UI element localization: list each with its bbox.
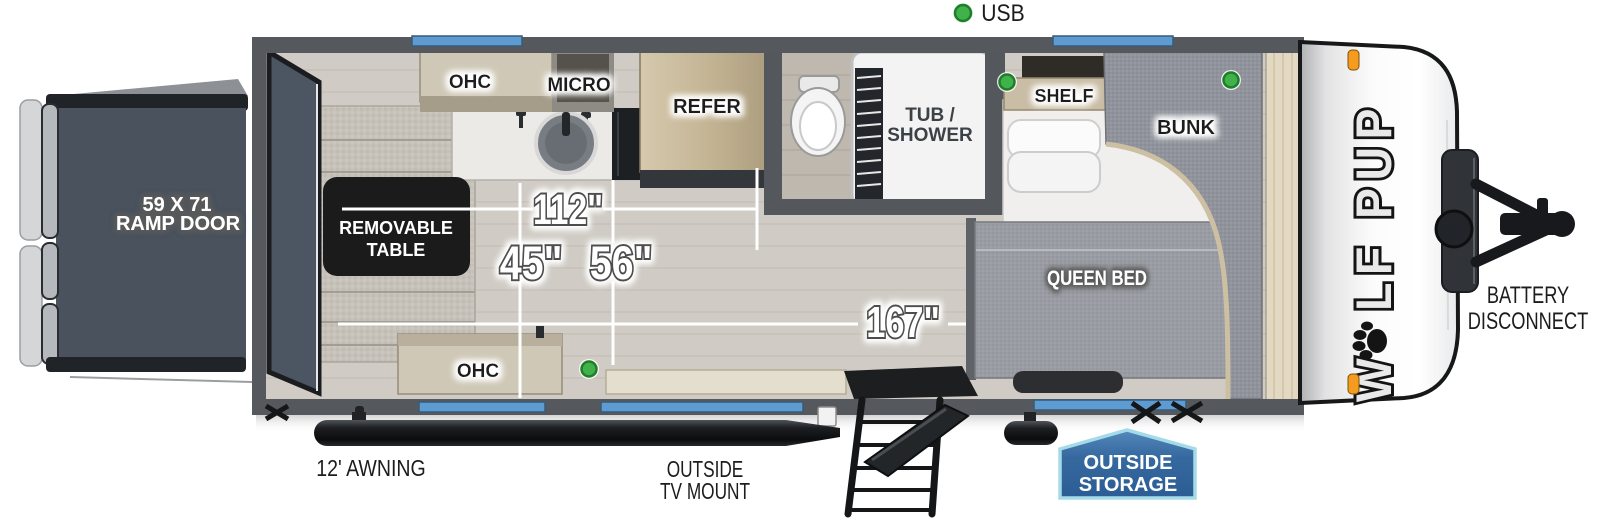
svg-text:DISCONNECT: DISCONNECT [1468,308,1588,335]
svg-text:MICRO: MICRO [547,75,610,96]
svg-text:LF PUP: LF PUP [1346,101,1402,311]
svg-text:STORAGE: STORAGE [1079,474,1178,496]
svg-text:TV MOUNT: TV MOUNT [660,480,750,505]
svg-text:56": 56" [590,238,653,290]
svg-text:45": 45" [500,238,563,290]
svg-text:REFER: REFER [673,96,741,118]
svg-text:USB: USB [981,0,1024,26]
svg-text:OHC: OHC [449,72,492,93]
svg-text:TUB /: TUB / [905,105,955,126]
svg-text:TABLE: TABLE [367,240,426,260]
svg-text:SHOWER: SHOWER [887,125,973,146]
svg-text:REMOVABLE: REMOVABLE [339,218,453,238]
svg-text:112": 112" [533,186,603,234]
svg-text:12' AWNING: 12' AWNING [316,456,425,482]
svg-text:SHELF: SHELF [1034,86,1093,106]
svg-text:QUEEN BED: QUEEN BED [1047,267,1147,290]
svg-text:OHC: OHC [457,361,500,382]
svg-text:BATTERY: BATTERY [1487,282,1569,309]
svg-text:167": 167" [866,298,939,347]
svg-text:OUTSIDE: OUTSIDE [1084,452,1173,474]
svg-text:RAMP DOOR: RAMP DOOR [116,213,241,235]
svg-text:BUNK: BUNK [1157,117,1215,139]
